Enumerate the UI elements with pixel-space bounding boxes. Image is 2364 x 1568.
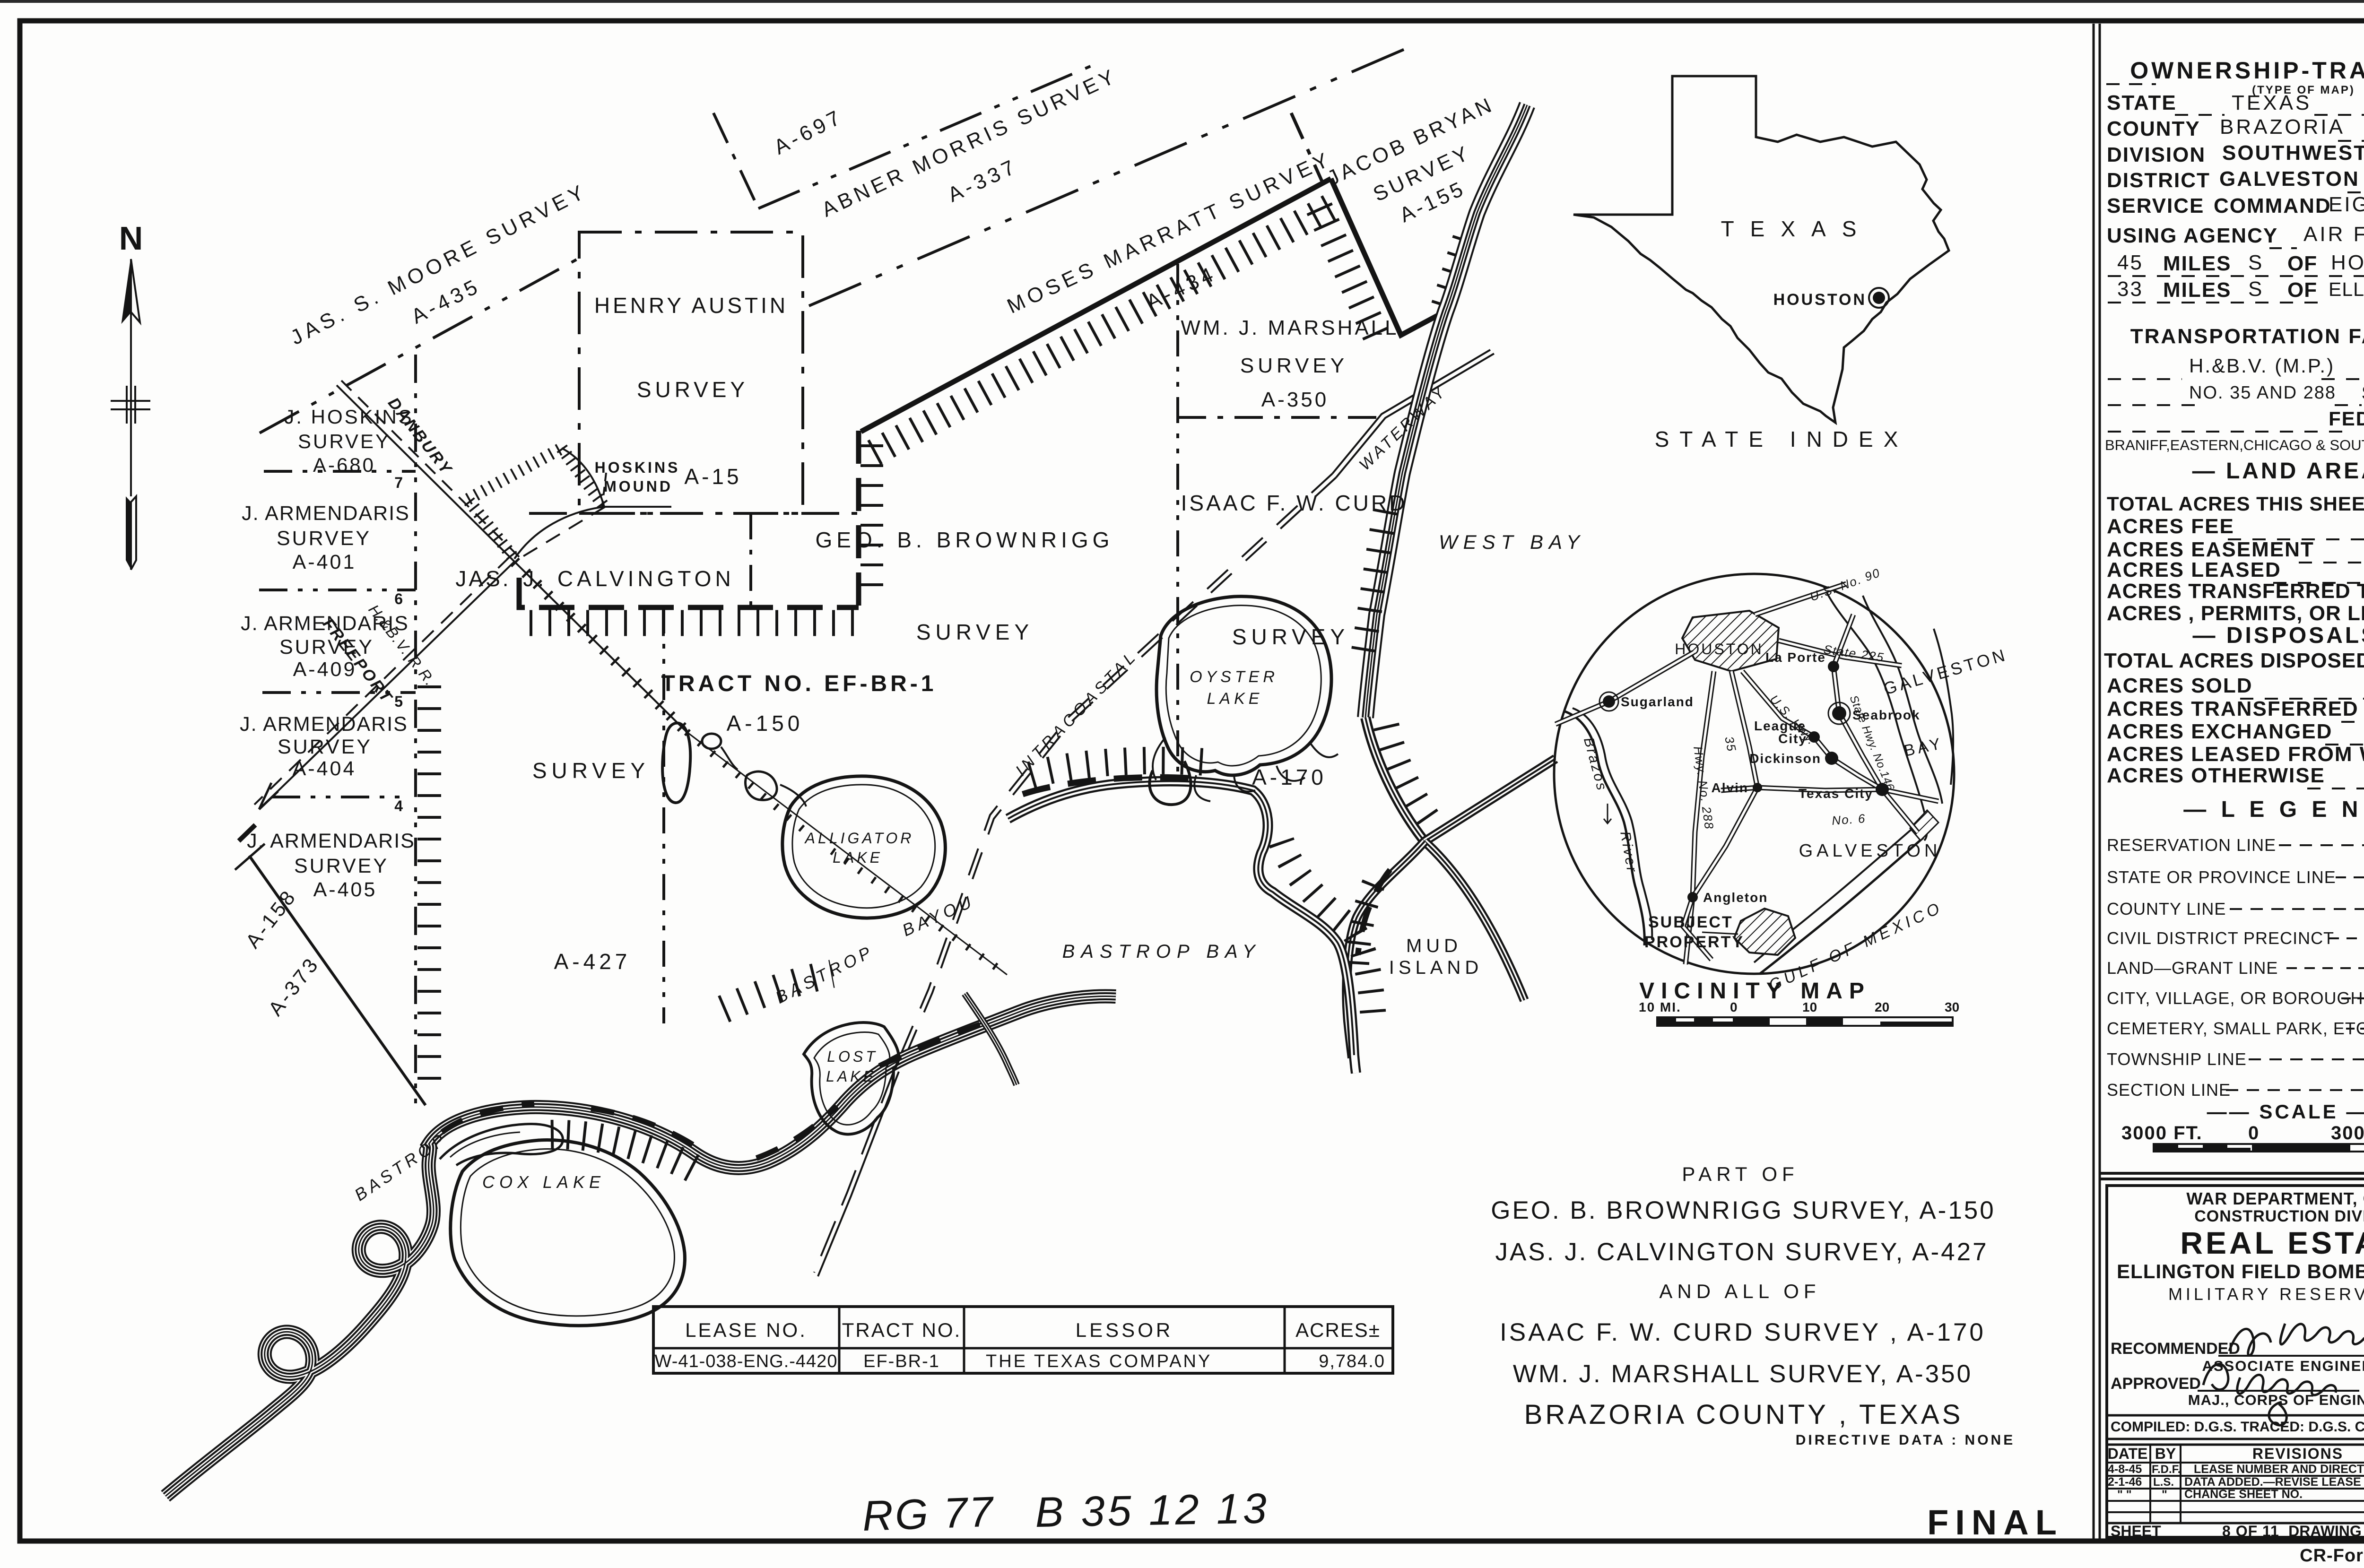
svg-text:APPROVED: APPROVED (2111, 1375, 2201, 1393)
svg-text:LEASE NO.: LEASE NO. (685, 1319, 807, 1341)
svg-text:A-405: A-405 (313, 878, 377, 901)
svg-text:ACRES , PERMITS, OR LICENSES: ACRES , PERMITS, OR LICENSES (2107, 602, 2364, 625)
svg-text:GEO. B. BROWNRIGG: GEO. B. BROWNRIGG (816, 528, 1114, 552)
svg-text:SURVEY: SURVEY (277, 527, 371, 550)
svg-text:SURVEY: SURVEY (294, 855, 389, 877)
svg-text:ALLIGATOR: ALLIGATOR (804, 830, 914, 847)
svg-text:LAKE: LAKE (833, 849, 883, 866)
svg-text:ACRES EASEMENT: ACRES EASEMENT (2107, 538, 2314, 561)
svg-text:TOTAL ACRES THIS SHEET: TOTAL ACRES THIS SHEET (2107, 493, 2364, 515)
svg-text:A-170: A-170 (1252, 765, 1327, 789)
svg-text:GALVESTON: GALVESTON (2219, 167, 2360, 191)
svg-text:—— SCALE ——: —— SCALE —— (2207, 1100, 2364, 1123)
svg-text:Texas City: Texas City (1799, 786, 1873, 801)
svg-text:DRAWING NO. HSC-460-32.1: DRAWING NO. HSC-460-32.1 (2288, 1523, 2364, 1540)
svg-text:GALVESTON: GALVESTON (1799, 841, 1941, 861)
svg-text:WM. J. MARSHALL SURVEY, A-3: WM. J. MARSHALL SURVEY, A-350 (1513, 1360, 1973, 1388)
svg-text:AND ALL OF: AND ALL OF (1659, 1280, 1820, 1302)
svg-text:STATE ROAD: STATE ROAD (2362, 381, 2364, 404)
svg-text:RESERVATION LINE: RESERVATION LINE (2107, 835, 2276, 855)
svg-text:TEXAS: TEXAS (2232, 91, 2312, 114)
svg-text:0: 0 (1730, 1000, 1738, 1014)
svg-text:TRANSPORTATION FACILITIES: TRANSPORTATION FACILITIES (2130, 325, 2364, 348)
svg-text:HENRY AUSTIN: HENRY AUSTIN (594, 293, 788, 318)
svg-text:J. ARMENDARIS: J. ARMENDARIS (242, 502, 410, 525)
svg-text:3000: 3000 (2331, 1123, 2364, 1144)
svg-text:SURVEY: SURVEY (637, 377, 748, 402)
svg-text:USING AGENCY: USING AGENCY (2107, 224, 2278, 247)
svg-text:ACRES LEASED: ACRES LEASED (2107, 558, 2281, 581)
svg-text:ISAAC F. W. CURD: ISAAC F. W. CURD (1181, 491, 1408, 515)
svg-text:MILES: MILES (2163, 278, 2231, 302)
svg-text:HOUSTON: HOUSTON (2331, 251, 2364, 274)
svg-text:ELLINGTON FIELD BOMBING RANGE: ELLINGTON FIELD BOMBING RANGE (2117, 1260, 2364, 1282)
svg-text:FINAL: FINAL (1927, 1503, 2063, 1542)
svg-text:DATE: DATE (2108, 1445, 2148, 1462)
svg-text:33: 33 (2117, 277, 2143, 301)
svg-text:A-404: A-404 (293, 757, 356, 780)
svg-text:6: 6 (394, 590, 403, 607)
svg-text:EF-BR-1: EF-BR-1 (863, 1351, 940, 1371)
svg-text:J. ARMENDARIS: J. ARMENDARIS (240, 713, 408, 736)
svg-text:REVISIONS: REVISIONS (2252, 1445, 2343, 1462)
svg-text:0: 0 (2248, 1123, 2259, 1144)
svg-text:ACRES FEE: ACRES FEE (2107, 515, 2234, 538)
svg-text:LOST: LOST (827, 1048, 878, 1065)
svg-text:ACRES TRANSFERRED TO W.D: ACRES TRANSFERRED TO W.D (2107, 580, 2364, 603)
svg-text:NO. 35 AND 288: NO. 35 AND 288 (2189, 383, 2336, 403)
svg-text:WAR DEPARTMENT, O.C.E.: WAR DEPARTMENT, O.C.E. (2186, 1189, 2364, 1208)
svg-text:MOUND: MOUND (604, 478, 673, 495)
svg-text:COMMAND: COMMAND (2214, 194, 2331, 217)
svg-text:COUNTY LINE: COUNTY LINE (2107, 899, 2226, 918)
svg-text:B 35 12 13: B 35 12 13 (1035, 1485, 1270, 1536)
svg-text:JAS. J. CALVINGTON SURVEY,: JAS. J. CALVINGTON SURVEY, A-427 (1495, 1238, 1988, 1266)
svg-text:LAKE: LAKE (826, 1068, 876, 1085)
svg-text:SOUTHWESTERN: SOUTHWESTERN (2222, 141, 2364, 165)
svg-text:DISTRICT: DISTRICT (2107, 169, 2210, 192)
svg-text:Angleton: Angleton (1703, 890, 1768, 905)
svg-text:HOUSTON: HOUSTON (1773, 291, 1867, 309)
svg-text:OWNERSHIP-TRACT MAP: OWNERSHIP-TRACT MAP (2130, 57, 2364, 84)
svg-text:Alvin: Alvin (1712, 780, 1748, 795)
svg-text:A-15: A-15 (684, 464, 741, 489)
svg-text:EIGHTH: EIGHTH (2329, 193, 2364, 216)
svg-text:La Porte: La Porte (1765, 650, 1826, 665)
svg-text:LAND—GRANT LINE: LAND—GRANT LINE (2107, 958, 2278, 978)
svg-text:SHEET: SHEET (2111, 1523, 2161, 1540)
svg-text:FEDERAL ROAD: FEDERAL ROAD (2329, 407, 2364, 430)
svg-text:MUD: MUD (1406, 936, 1462, 956)
svg-text:COMPILED: D.G.S. TRACED: D.G: COMPILED: D.G.S. TRACED: D.G.S. CHECKED:… (2111, 1419, 2364, 1435)
svg-text:THE TEXAS COMPANY: THE TEXAS COMPANY (986, 1351, 1212, 1371)
svg-text:LAKE: LAKE (1207, 690, 1263, 708)
svg-text:10 MI.: 10 MI. (1639, 1000, 1681, 1014)
svg-text:OYSTER: OYSTER (1190, 668, 1278, 686)
svg-text:ISLAND: ISLAND (1389, 957, 1483, 978)
svg-text:— DISPOSALS —: — DISPOSALS — (2192, 623, 2364, 648)
svg-text:SURVEY: SURVEY (1240, 354, 1348, 377)
svg-text:J. ARMENDARIS: J. ARMENDARIS (247, 830, 415, 852)
svg-text:MILITARY RESERVATION: MILITARY RESERVATION (2168, 1284, 2364, 1304)
svg-text:TRACT NO.: TRACT NO. (842, 1319, 962, 1341)
svg-text:ACRES OTHERWISE: ACRES OTHERWISE (2107, 764, 2325, 787)
svg-text:A-680: A-680 (313, 454, 375, 476)
svg-text:L.S.: L.S. (2153, 1476, 2174, 1489)
svg-text:BRAZORIA COUNTY , TEXAS: BRAZORIA COUNTY , TEXAS (1524, 1399, 1964, 1430)
svg-text:CONSTRUCTION DIVISION: CONSTRUCTION DIVISION (2194, 1207, 2364, 1225)
svg-text:" ": " " (2117, 1488, 2132, 1501)
svg-text:ACRES TRANSFERRED: ACRES TRANSFERRED (2107, 697, 2359, 720)
svg-text:A-150: A-150 (727, 711, 804, 736)
svg-text:TOWNSHIP LINE: TOWNSHIP LINE (2107, 1049, 2247, 1069)
svg-text:BRANIFF,EASTERN,CHICAGO & SOUT: BRANIFF,EASTERN,CHICAGO & SOUTHERN (2105, 437, 2364, 453)
svg-text:CITY, VILLAGE, OR BOROUGH: CITY, VILLAGE, OR BOROUGH (2107, 988, 2363, 1008)
svg-text:30: 30 (1945, 1000, 1959, 1014)
svg-text:LESSOR: LESSOR (1076, 1319, 1173, 1341)
svg-text:CEMETERY, SMALL PARK, ETC: CEMETERY, SMALL PARK, ETC (2107, 1019, 2364, 1038)
svg-text:TRACT NO. EF-BR-1: TRACT NO. EF-BR-1 (661, 671, 937, 696)
svg-text:20: 20 (1875, 1000, 1889, 1014)
svg-text:SECTION LINE: SECTION LINE (2107, 1080, 2231, 1100)
svg-text:TOTAL ACRES DISPOSED OF: TOTAL ACRES DISPOSED OF (2104, 649, 2364, 672)
svg-text:SERVICE: SERVICE (2107, 194, 2204, 217)
svg-text:TEXAS: TEXAS (1721, 217, 1873, 241)
svg-text:STATE OR PROVINCE LINE: STATE OR PROVINCE LINE (2107, 867, 2336, 887)
svg-text:8 OF 11: 8 OF 11 (2222, 1523, 2279, 1540)
svg-text:ISAAC F. W. CURD SURVEY , A-: ISAAC F. W. CURD SURVEY , A-170 (1500, 1318, 1986, 1346)
svg-text:WM. J. MARSHALL: WM. J. MARSHALL (1181, 316, 1399, 339)
svg-text:BY: BY (2155, 1445, 2176, 1462)
svg-text:N: N (119, 220, 143, 257)
svg-text:— LAND AREA —: — LAND AREA — (2192, 459, 2364, 484)
svg-text:SURVEY: SURVEY (1232, 624, 1349, 649)
svg-text:REAL ESTATE: REAL ESTATE (2180, 1225, 2364, 1260)
svg-text:S: S (2248, 251, 2262, 274)
svg-text:A-401: A-401 (293, 551, 356, 573)
svg-text:10: 10 (1802, 1000, 1817, 1014)
svg-text:SURVEY: SURVEY (278, 736, 372, 758)
svg-text:SUBJECT: SUBJECT (1648, 913, 1733, 931)
svg-text:4: 4 (394, 797, 403, 814)
svg-text:ACRES LEASED FROM W.D.: ACRES LEASED FROM W.D. (2107, 743, 2364, 766)
svg-text:BASTROP BAY: BASTROP BAY (1062, 941, 1261, 962)
svg-text:3000 FT.: 3000 FT. (2121, 1123, 2203, 1144)
svg-text:COX LAKE: COX LAKE (482, 1172, 605, 1192)
svg-text:CIVIL DISTRICT PRECINCT: CIVIL DISTRICT PRECINCT (2107, 928, 2334, 948)
svg-text:HOSKINS: HOSKINS (595, 459, 680, 476)
svg-text:RG 77: RG 77 (861, 1488, 995, 1540)
svg-text:A-350: A-350 (1261, 388, 1329, 411)
svg-text:PART OF: PART OF (1682, 1163, 1799, 1185)
svg-text:STATE INDEX: STATE INDEX (1655, 427, 1909, 451)
svg-text:ACRES±: ACRES± (1295, 1319, 1381, 1341)
svg-text:No. 6: No. 6 (1831, 811, 1866, 828)
svg-text:": " (2162, 1488, 2167, 1501)
svg-text:CHANGE SHEET NO.: CHANGE SHEET NO. (2184, 1488, 2303, 1501)
svg-text:COUNTY: COUNTY (2107, 117, 2200, 140)
svg-text:A-427: A-427 (554, 949, 631, 974)
svg-text:WEST BAY: WEST BAY (1439, 531, 1585, 553)
svg-text:J. CALVINGTON: J. CALVINGTON (523, 566, 734, 591)
svg-text:7: 7 (394, 474, 403, 491)
svg-text:Dickinson: Dickinson (1749, 751, 1821, 766)
svg-text:S: S (2248, 277, 2262, 301)
svg-text:AIR FORCES: AIR FORCES (2303, 223, 2364, 246)
svg-text:9,784.0: 9,784.0 (1319, 1351, 1385, 1371)
svg-text:MILES: MILES (2163, 252, 2231, 275)
svg-text:— L E G E N D —: — L E G E N D — (2183, 797, 2364, 822)
svg-text:Sugarland: Sugarland (1621, 694, 1694, 709)
svg-text:PROPERTY: PROPERTY (1644, 933, 1744, 951)
svg-text:GEO. B. BROWNRIGG SURVEY, A-: GEO. B. BROWNRIGG SURVEY, A-150 (1491, 1196, 1996, 1224)
svg-text:F.D.F.: F.D.F. (2152, 1463, 2181, 1476)
svg-text:DIVISION: DIVISION (2107, 143, 2206, 166)
svg-text:W-41-038-ENG.-4420: W-41-038-ENG.-4420 (655, 1351, 838, 1371)
svg-text:4-8-45: 4-8-45 (2108, 1463, 2142, 1476)
svg-text:2-1-46: 2-1-46 (2108, 1475, 2142, 1489)
svg-text:STATE: STATE (2107, 91, 2177, 114)
svg-text:ACRES EXCHANGED: ACRES EXCHANGED (2107, 720, 2332, 743)
svg-text:BRAZORIA: BRAZORIA (2220, 115, 2345, 139)
svg-text:SURVEY: SURVEY (916, 620, 1034, 644)
svg-text:OF: OF (2287, 278, 2317, 302)
svg-text:SURVEY: SURVEY (298, 430, 391, 452)
svg-text:MAJ., CORPS OF ENGINEERS: MAJ., CORPS OF ENGINEERS (2188, 1392, 2364, 1408)
svg-text:H.&B.V. (M.P.): H.&B.V. (M.P.) (2189, 355, 2335, 377)
svg-text:DATA ADDED.—REVISE LEASE NO.,: DATA ADDED.—REVISE LEASE NO., (2184, 1475, 2364, 1489)
svg-text:45: 45 (2117, 251, 2143, 274)
svg-text:OF: OF (2287, 252, 2317, 275)
svg-text:ELLINGTON FIELD: ELLINGTON FIELD (2329, 278, 2364, 300)
svg-text:LEASE NUMBER AND DIRECTIVE: LEASE NUMBER AND DIRECTIVE (2194, 1463, 2364, 1476)
svg-text:DIRECTIVE DATA : NONE: DIRECTIVE DATA : NONE (1796, 1432, 2015, 1448)
svg-text:CR-Form-1778: CR-Form-1778 (2300, 1546, 2364, 1566)
svg-text:SURVEY: SURVEY (532, 758, 650, 783)
svg-text:ACRES SOLD: ACRES SOLD (2107, 674, 2252, 697)
svg-text:JAS.: JAS. (455, 566, 511, 591)
